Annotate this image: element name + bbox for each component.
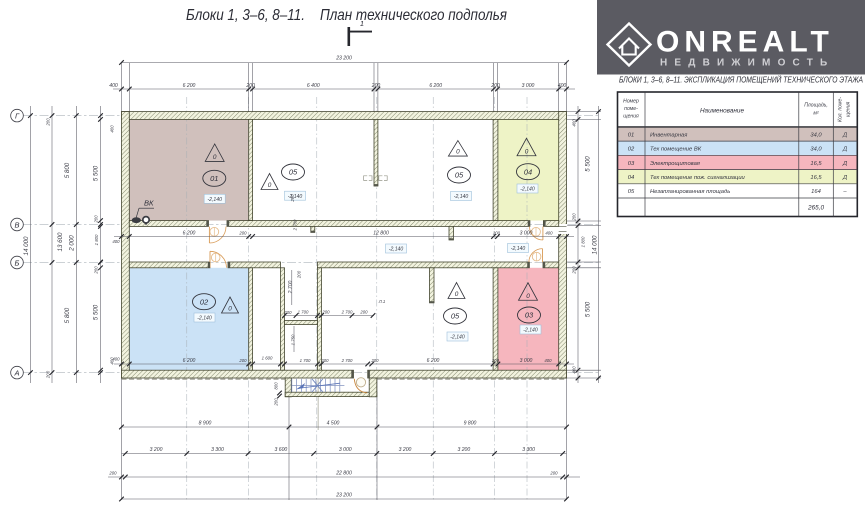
svg-text:0: 0	[526, 293, 530, 300]
svg-text:Блоки 1, 3–6, 8–11. План т: Блоки 1, 3–6, 8–11. План технического по…	[186, 7, 507, 24]
svg-text:Наименование: Наименование	[700, 108, 745, 115]
svg-text:Д: Д	[842, 132, 847, 138]
svg-text:23 200: 23 200	[335, 492, 352, 498]
svg-text:200: 200	[359, 310, 368, 315]
svg-text:13 600: 13 600	[57, 232, 64, 251]
svg-text:3 300: 3 300	[211, 447, 224, 453]
svg-text:200: 200	[320, 358, 329, 363]
svg-text:3 200: 3 200	[457, 447, 470, 453]
svg-text:1 700: 1 700	[300, 358, 311, 363]
svg-text:1 600: 1 600	[262, 356, 273, 361]
svg-text:1 750: 1 750	[291, 334, 296, 345]
svg-text:3 200: 3 200	[150, 447, 163, 453]
svg-text:-2,140: -2,140	[454, 194, 469, 200]
svg-text:3 000: 3 000	[339, 447, 352, 453]
svg-text:5 500: 5 500	[93, 165, 100, 181]
svg-text:22 800: 22 800	[335, 470, 352, 476]
svg-text:265,0: 265,0	[807, 205, 824, 212]
svg-text:НЕДВИЖИМОСТЬ: НЕДВИЖИМОСТЬ	[660, 58, 834, 69]
svg-text:400: 400	[544, 358, 552, 363]
svg-text:34,0: 34,0	[810, 147, 822, 153]
svg-text:3 000: 3 000	[520, 358, 533, 364]
svg-text:0: 0	[525, 148, 529, 155]
svg-text:6 200: 6 200	[429, 83, 442, 89]
svg-text:05: 05	[289, 168, 298, 177]
svg-text:-2,140: -2,140	[523, 328, 538, 334]
svg-text:400: 400	[572, 119, 577, 127]
svg-text:5 500: 5 500	[585, 301, 592, 317]
svg-text:04: 04	[524, 167, 532, 176]
svg-text:-2,140: -2,140	[389, 247, 404, 253]
svg-text:01: 01	[210, 174, 218, 183]
svg-text:3 000: 3 000	[520, 230, 533, 236]
svg-text:0: 0	[228, 306, 232, 313]
svg-text:Инвентарная: Инвентарная	[650, 132, 687, 138]
svg-text:02: 02	[628, 147, 635, 153]
svg-text:-2,140: -2,140	[450, 335, 465, 341]
svg-text:2 000: 2 000	[69, 235, 76, 252]
svg-text:м²: м²	[813, 111, 818, 117]
svg-text:200: 200	[94, 266, 99, 275]
svg-text:щения: щения	[846, 101, 852, 117]
svg-text:0: 0	[455, 291, 459, 298]
svg-text:ВК: ВК	[144, 199, 154, 208]
svg-text:щения: щения	[623, 114, 639, 120]
svg-text:1 800: 1 800	[581, 236, 586, 247]
svg-text:200: 200	[238, 358, 247, 363]
svg-text:200: 200	[491, 358, 500, 363]
svg-text:8 900: 8 900	[199, 420, 212, 426]
svg-text:200: 200	[46, 118, 51, 127]
svg-text:1: 1	[360, 19, 364, 28]
svg-text:Б: Б	[15, 258, 20, 267]
svg-text:200: 200	[572, 213, 577, 222]
svg-text:400: 400	[110, 125, 115, 133]
svg-text:-2,140: -2,140	[207, 197, 222, 203]
svg-text:Номер: Номер	[623, 99, 639, 105]
svg-text:200: 200	[290, 194, 295, 203]
svg-text:200: 200	[46, 370, 51, 379]
svg-text:200: 200	[370, 358, 379, 363]
svg-text:5 500: 5 500	[93, 304, 100, 320]
svg-text:01: 01	[628, 132, 634, 138]
svg-text:200: 200	[296, 270, 301, 279]
svg-text:400: 400	[112, 239, 120, 244]
svg-text:200: 200	[238, 230, 247, 235]
svg-text:400: 400	[545, 230, 553, 235]
svg-text:1 800: 1 800	[94, 234, 99, 245]
svg-text:Площадь,: Площадь,	[804, 103, 828, 109]
svg-text:Незапланированная площадь: Незапланированная площадь	[650, 189, 730, 195]
svg-text:9 800: 9 800	[464, 420, 477, 426]
svg-text:В: В	[14, 220, 19, 229]
svg-text:0: 0	[213, 154, 217, 161]
svg-text:05: 05	[455, 171, 464, 180]
svg-text:6 200: 6 200	[427, 358, 440, 364]
svg-text:200: 200	[94, 215, 99, 224]
svg-text:200: 200	[371, 83, 381, 89]
svg-text:400: 400	[572, 366, 577, 374]
svg-text:5 800: 5 800	[64, 162, 71, 178]
svg-text:14 000: 14 000	[591, 235, 598, 254]
svg-text:800: 800	[274, 382, 279, 390]
svg-text:05: 05	[628, 189, 635, 195]
svg-text:0: 0	[456, 149, 460, 156]
svg-text:14 000: 14 000	[23, 236, 30, 255]
svg-text:02: 02	[200, 297, 209, 306]
svg-text:200: 200	[549, 471, 558, 476]
svg-text:2 700: 2 700	[341, 358, 353, 363]
svg-text:5 800: 5 800	[64, 307, 71, 323]
svg-text:200: 200	[572, 266, 577, 275]
svg-text:03: 03	[525, 311, 534, 320]
svg-text:2 700: 2 700	[293, 219, 298, 231]
svg-text:16,5: 16,5	[810, 161, 822, 167]
svg-text:200: 200	[108, 471, 117, 476]
svg-text:-2,140: -2,140	[197, 316, 212, 322]
svg-text:400: 400	[110, 357, 115, 365]
svg-text:3 300: 3 300	[522, 447, 535, 453]
svg-text:200: 200	[492, 230, 501, 235]
svg-text:Тех помещение пож. сигнализаци: Тех помещение пож. сигнализации	[650, 175, 746, 181]
svg-text:16,5: 16,5	[810, 175, 822, 181]
svg-text:6 200: 6 200	[183, 230, 196, 236]
svg-text:А: А	[13, 368, 19, 377]
svg-text:Электрощитовая: Электрощитовая	[650, 161, 700, 167]
svg-text:164: 164	[811, 189, 821, 195]
svg-text:400: 400	[109, 83, 118, 89]
svg-text:04: 04	[628, 175, 634, 181]
svg-text:Л.1: Л.1	[378, 299, 386, 304]
svg-text:34,0: 34,0	[810, 132, 822, 138]
svg-text:Д: Д	[842, 161, 847, 167]
svg-text:6 400: 6 400	[307, 83, 320, 89]
svg-text:3 200: 3 200	[399, 447, 412, 453]
svg-text:3 600: 3 600	[275, 447, 288, 453]
svg-text:200: 200	[283, 310, 292, 315]
svg-text:03: 03	[628, 161, 635, 167]
svg-text:ONREALT: ONREALT	[656, 26, 834, 59]
svg-text:05: 05	[451, 312, 460, 321]
svg-text:БЛОКИ 1, 3–6, 8–11. ЭКСПЛИКА: БЛОКИ 1, 3–6, 8–11. ЭКСПЛИКАЦИЯ ПОМЕЩЕНИ…	[619, 74, 863, 85]
svg-text:200: 200	[245, 83, 255, 89]
svg-text:6 200: 6 200	[183, 358, 196, 364]
svg-text:0: 0	[268, 182, 272, 189]
svg-text:-2,140: -2,140	[520, 187, 535, 193]
svg-text:-2,140: -2,140	[511, 246, 526, 252]
svg-text:4 500: 4 500	[327, 420, 340, 426]
svg-text:2 700: 2 700	[341, 310, 353, 315]
svg-text:6 200: 6 200	[183, 83, 196, 89]
svg-text:Тех помещение ВК: Тех помещение ВК	[650, 147, 702, 153]
svg-text:200: 200	[490, 83, 500, 89]
svg-text:5 500: 5 500	[585, 156, 592, 172]
svg-text:1 700: 1 700	[298, 310, 309, 315]
svg-text:поме-: поме-	[624, 106, 638, 112]
svg-text:Д: Д	[842, 147, 847, 153]
svg-text:3 000: 3 000	[522, 83, 535, 89]
svg-text:Д: Д	[842, 175, 847, 181]
svg-text:200: 200	[274, 398, 279, 407]
svg-text:23 200: 23 200	[335, 56, 352, 62]
svg-text:400: 400	[558, 83, 567, 89]
svg-text:2 700: 2 700	[288, 280, 294, 294]
svg-text:12 800: 12 800	[373, 230, 389, 236]
svg-text:Кол. поме-: Кол. поме-	[838, 97, 844, 122]
